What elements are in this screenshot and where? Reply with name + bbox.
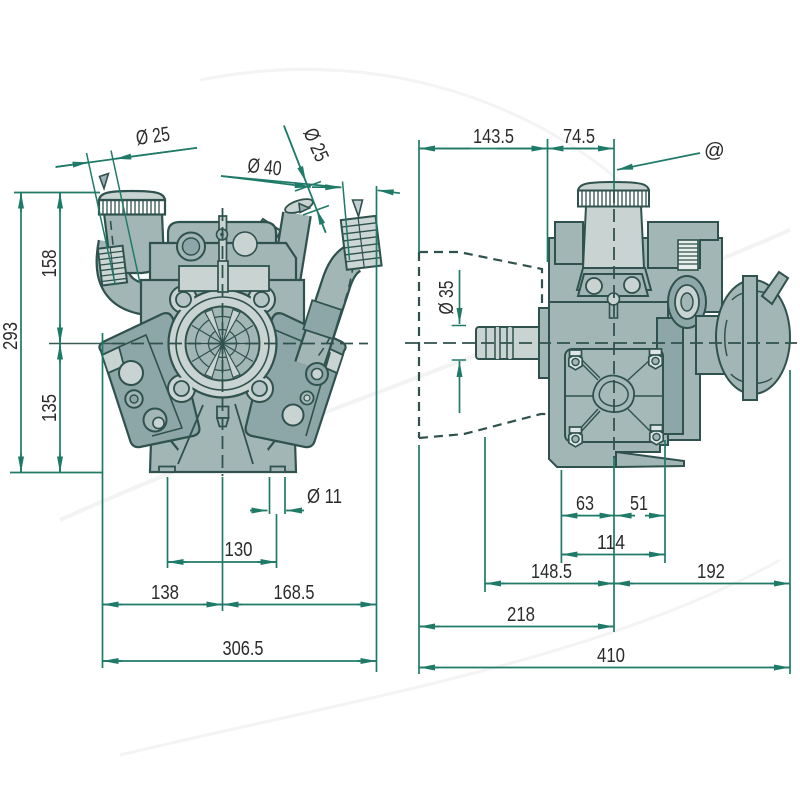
svg-text:293: 293 (0, 322, 22, 350)
svg-text:114: 114 (597, 531, 625, 554)
svg-text:51: 51 (630, 492, 648, 515)
svg-text:135: 135 (38, 394, 61, 422)
svg-text:63: 63 (576, 492, 594, 515)
svg-text:138: 138 (151, 581, 179, 604)
svg-text:Ø 25: Ø 25 (134, 122, 171, 150)
svg-text:Ø 11: Ø 11 (307, 485, 342, 508)
svg-text:130: 130 (225, 538, 253, 561)
svg-text:410: 410 (597, 644, 625, 667)
svg-text:@: @ (704, 139, 725, 162)
svg-text:168.5: 168.5 (274, 581, 315, 604)
svg-text:Ø 25: Ø 25 (298, 125, 333, 165)
svg-text:74.5: 74.5 (563, 125, 595, 148)
svg-text:306.5: 306.5 (223, 637, 264, 660)
svg-text:Ø 35: Ø 35 (435, 281, 458, 315)
svg-text:Ø 40: Ø 40 (246, 154, 282, 180)
svg-text:143.5: 143.5 (473, 125, 514, 148)
svg-text:148.5: 148.5 (531, 560, 572, 583)
svg-text:218: 218 (507, 603, 535, 626)
svg-text:158: 158 (38, 250, 61, 278)
svg-text:192: 192 (697, 560, 725, 583)
